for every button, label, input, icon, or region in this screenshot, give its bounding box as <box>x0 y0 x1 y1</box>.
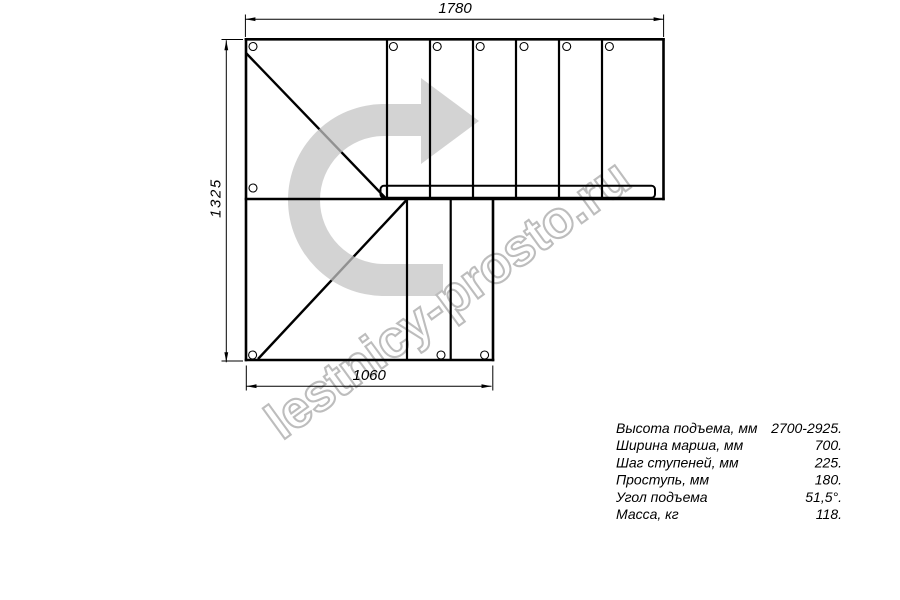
svg-text:225.: 225. <box>814 454 842 470</box>
svg-text:1780: 1780 <box>438 0 472 17</box>
svg-text:180.: 180. <box>815 472 842 488</box>
svg-text:1060: 1060 <box>353 367 387 384</box>
svg-text:Высота подъема, мм: Высота подъема, мм <box>616 420 758 436</box>
svg-text:51,5°.: 51,5°. <box>805 489 842 505</box>
svg-text:Угол подъема: Угол подъема <box>615 489 708 505</box>
svg-text:118.: 118. <box>816 506 842 522</box>
svg-text:Шаг ступеней, мм: Шаг ступеней, мм <box>616 454 739 470</box>
svg-text:Масса, кг: Масса, кг <box>616 506 679 522</box>
svg-text:Ширина марша, мм: Ширина марша, мм <box>616 437 744 453</box>
svg-text:700.: 700. <box>815 437 842 453</box>
svg-text:Проступь, мм: Проступь, мм <box>616 472 710 488</box>
svg-text:2700-2925.: 2700-2925. <box>770 420 842 436</box>
svg-text:1325: 1325 <box>208 178 225 218</box>
